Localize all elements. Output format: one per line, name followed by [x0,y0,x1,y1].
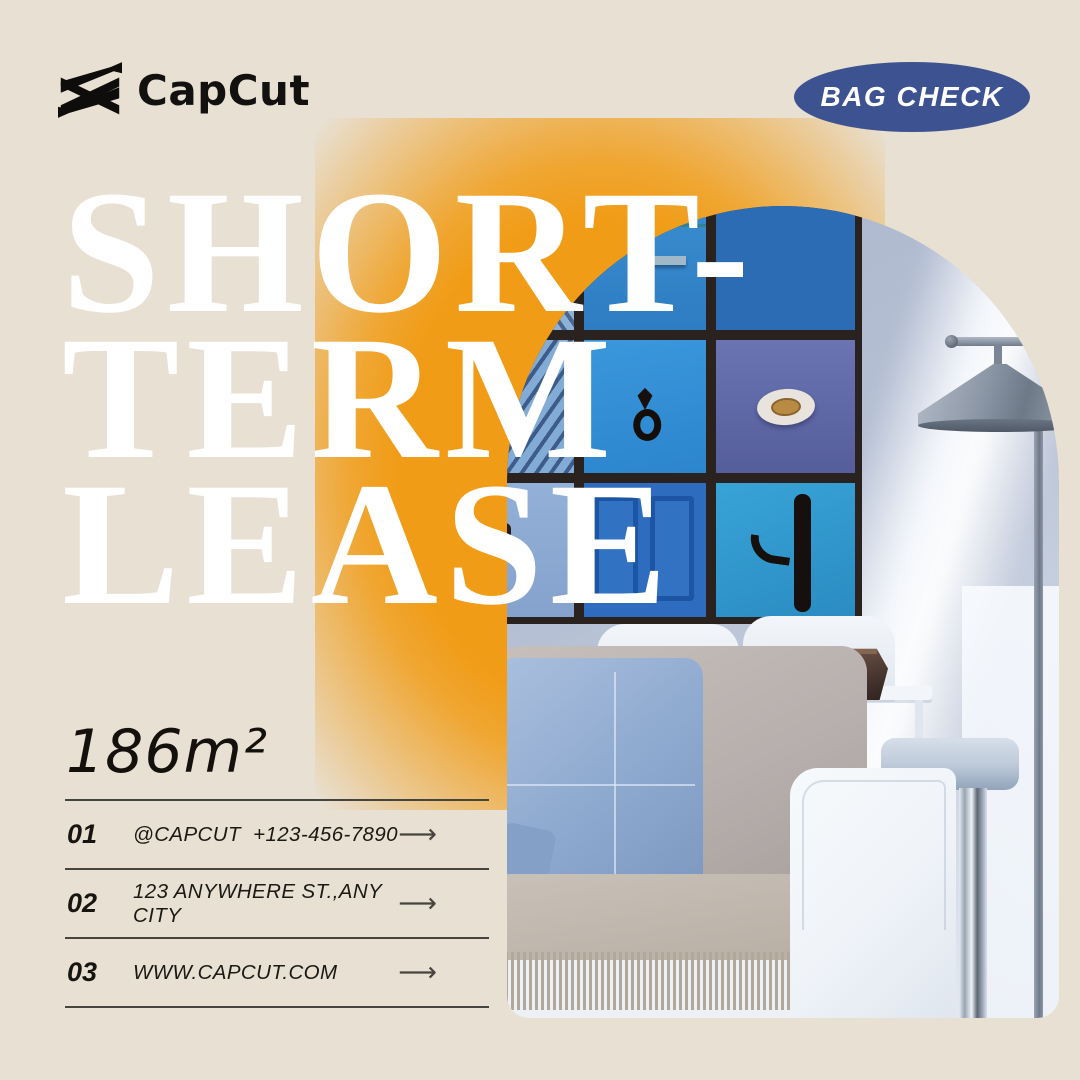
row-number: 01 [67,819,133,850]
headline: SHORT- TERM LEASE [62,180,756,618]
poster-canvas: CapCut BAG CHECK [0,0,1080,1080]
table-chrome-leg [959,788,987,1018]
row-text: @CAPCUT +123-456-7890 [133,823,398,847]
capcut-logo-icon [58,62,122,118]
area-size-label: 186m² [66,716,268,788]
badge-label: BAG CHECK [820,81,1003,113]
row-number: 02 [67,888,133,919]
arrow-right-icon[interactable]: ⟶ [398,957,437,988]
sofa-arm [790,768,956,1018]
arrow-right-icon[interactable]: ⟶ [398,819,437,850]
row-number: 03 [67,957,133,988]
contact-row-address[interactable]: 02 123 ANYWHERE ST.,ANY CITY ⟶ [65,868,489,937]
row-text: 123 ANYWHERE ST.,ANY CITY [133,880,398,928]
brand-name: CapCut [137,66,310,115]
arrow-right-icon[interactable]: ⟶ [398,888,437,919]
contact-row-handle-phone[interactable]: 01 @CAPCUT +123-456-7890 ⟶ [65,799,489,868]
floor-lamp-pole [1034,428,1043,1018]
headline-line-3: LEASE [62,472,756,618]
contact-list: 01 @CAPCUT +123-456-7890 ⟶ 02 123 ANYWHE… [65,799,489,1008]
bag-check-badge[interactable]: BAG CHECK [794,62,1030,132]
floor-lamp-stem [994,345,1002,367]
row-text: WWW.CAPCUT.COM [133,961,398,985]
floor-lamp-arm [951,337,1029,346]
floor-lamp-ball [945,335,958,348]
contact-row-website[interactable]: 03 WWW.CAPCUT.COM ⟶ [65,937,489,1006]
brand-lockup: CapCut [58,62,310,118]
